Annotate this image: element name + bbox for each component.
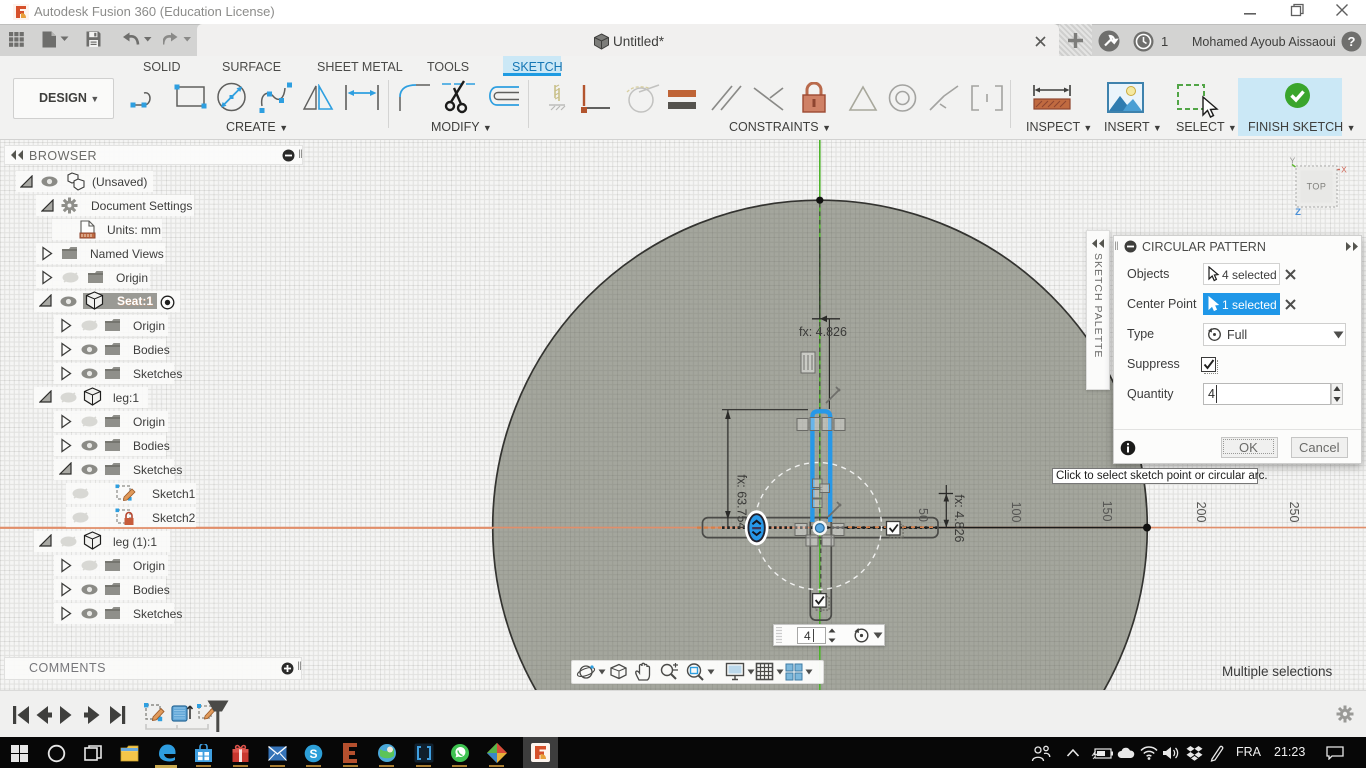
svg-text:150: 150 [1100,501,1114,522]
svg-text:fx: 4.826: fx: 4.826 [799,325,847,339]
svg-text:TOP: TOP [1307,182,1327,192]
svg-text:?: ? [1348,34,1356,49]
svg-text:Z: Z [1295,207,1301,218]
svg-text:Y: Y [1290,156,1296,166]
svg-text:250: 250 [1287,502,1301,523]
svg-text:100: 100 [1009,502,1023,523]
svg-text:200: 200 [1194,502,1208,523]
svg-text:X: X [1341,165,1347,175]
svg-text:50: 50 [916,508,930,522]
svg-text:S: S [309,747,317,761]
svg-text:fx: 4.826: fx: 4.826 [952,495,966,543]
